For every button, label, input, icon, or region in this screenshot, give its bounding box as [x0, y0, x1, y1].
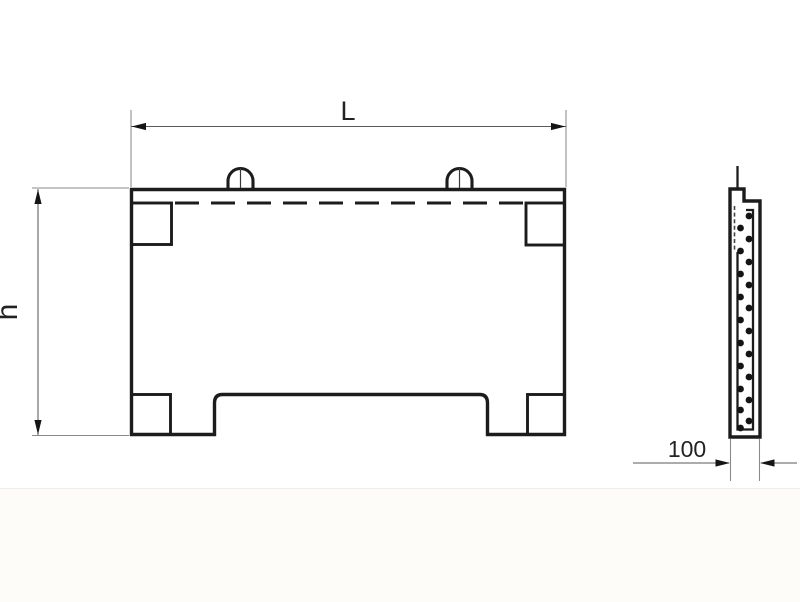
- rebar-dot: [746, 213, 753, 220]
- rebar-dot: [746, 282, 753, 289]
- rebar-dot: [746, 418, 753, 425]
- rebar-dot: [746, 259, 753, 266]
- corner-plate-bottom-left: [132, 395, 171, 435]
- corner-plate-top-right: [526, 203, 565, 245]
- rebar-dot: [746, 236, 753, 243]
- rebar-dot: [737, 407, 744, 414]
- arrowhead-left: [716, 459, 731, 466]
- rebar-dot: [746, 351, 753, 358]
- rebar-dot: [746, 374, 753, 381]
- rebar-dot: [737, 363, 744, 370]
- rebar-dot: [737, 271, 744, 278]
- panel-outline: [132, 190, 565, 435]
- arrowhead-top: [34, 190, 41, 205]
- arrowhead-left: [132, 123, 147, 130]
- rebar-dot: [737, 425, 744, 432]
- rebar-dots: [737, 213, 752, 432]
- arrowhead-bottom: [34, 420, 41, 435]
- rebar-dot: [737, 317, 744, 324]
- rebar-dot: [746, 328, 753, 335]
- length-label: L: [340, 96, 355, 126]
- dimension-height: h: [0, 188, 129, 436]
- technical-drawing-svg: L h: [0, 0, 800, 602]
- arrowhead-right: [760, 459, 775, 466]
- section-view: [730, 166, 760, 437]
- thickness-label: 100: [668, 436, 706, 462]
- rebar-dot: [737, 386, 744, 393]
- rebar-dot: [737, 294, 744, 301]
- rebar-dot: [737, 340, 744, 347]
- lifting-loop-left: [228, 168, 253, 188]
- height-label: h: [0, 304, 24, 321]
- corner-plate-bottom-right: [528, 395, 565, 435]
- dimension-thickness: 100: [633, 436, 797, 481]
- lifting-loop-right: [447, 168, 472, 188]
- rebar-dot: [737, 248, 744, 255]
- dimension-length: L: [131, 96, 566, 187]
- front-view: [132, 168, 565, 435]
- rebar-dot: [746, 397, 753, 404]
- rebar-dot: [746, 305, 753, 312]
- drawing-canvas: L h: [0, 0, 800, 602]
- arrowhead-right: [551, 123, 566, 130]
- rebar-dot: [737, 225, 744, 232]
- corner-plate-top-left: [132, 203, 172, 245]
